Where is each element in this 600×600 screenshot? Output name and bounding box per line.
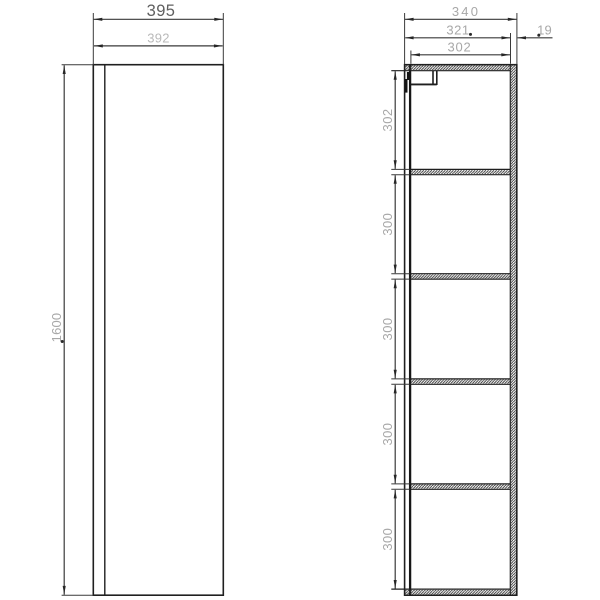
svg-text:340: 340 — [452, 4, 480, 19]
svg-text:395: 395 — [147, 2, 176, 20]
svg-text:302: 302 — [380, 109, 395, 132]
svg-text:300: 300 — [380, 318, 395, 341]
svg-text:300: 300 — [380, 528, 395, 551]
svg-text:300: 300 — [380, 213, 395, 236]
svg-text:1600: 1600 — [49, 313, 64, 343]
svg-text:300: 300 — [380, 423, 395, 446]
svg-text:302: 302 — [447, 39, 471, 54]
svg-text:321: 321 — [446, 22, 469, 37]
svg-text:392: 392 — [147, 31, 170, 46]
